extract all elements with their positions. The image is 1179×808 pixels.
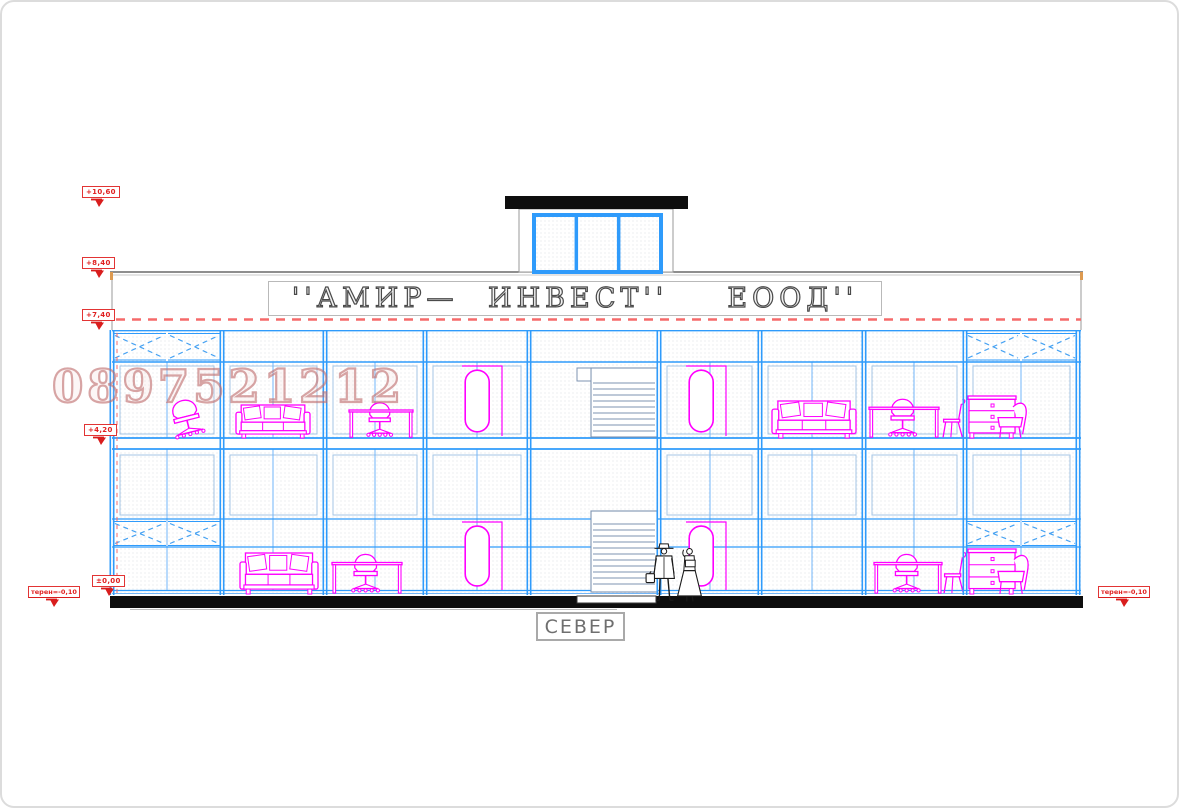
chair-wheel	[895, 433, 898, 436]
elevation-sheet: ''АМИР— ИНВЕСТ'' ЕООД'' 0897521212 СЕВЕР…	[0, 0, 1179, 808]
sofa-pillow	[270, 555, 287, 570]
drawers-foot	[1009, 433, 1013, 438]
chair-wheel	[905, 589, 908, 592]
furniture-sofa	[240, 553, 318, 594]
sofa-base	[776, 430, 852, 434]
stair-box	[591, 368, 657, 437]
sofa-pillow	[804, 403, 822, 416]
man-head	[661, 549, 666, 554]
chair-seat	[891, 416, 914, 420]
level-arrow-icon	[91, 436, 111, 447]
armchair-seat	[998, 571, 1024, 581]
woman-leg	[692, 596, 693, 602]
armchair-seat	[998, 418, 1023, 427]
drawers-foot	[1009, 589, 1013, 594]
rooftop-slab	[505, 196, 688, 209]
drawer-knob	[991, 426, 994, 429]
elevation-marker: ±0,00	[92, 575, 125, 598]
sofa-pillow	[290, 554, 309, 571]
rooftop-window	[534, 215, 661, 272]
chair-wheel	[901, 433, 904, 436]
sofa-seat	[241, 422, 305, 431]
desk-top	[332, 563, 402, 565]
sofa-pillow	[826, 402, 846, 418]
chair-seat	[944, 419, 960, 422]
chair-wheel	[195, 430, 199, 434]
man-briefcase	[646, 574, 654, 583]
elevation-value: +4,20	[84, 424, 117, 436]
chair-wheel	[893, 589, 896, 592]
chair-seat	[369, 418, 390, 422]
sofa-foot	[300, 434, 304, 438]
desk-leg	[935, 409, 938, 437]
chair-wheel	[376, 589, 379, 592]
terrain-marker: терен=-0,10	[28, 586, 80, 609]
elevation-marker: +8,40	[82, 257, 115, 280]
chair-wheel	[389, 433, 392, 436]
elevation-marker: +10,60	[82, 186, 120, 209]
sofa-seat	[778, 420, 850, 430]
operable-panel-texture	[113, 334, 166, 361]
drawer-knob	[991, 558, 994, 561]
terrain-value: терен=-0,10	[1098, 586, 1150, 598]
stair-landing	[577, 368, 591, 381]
sofa-base	[240, 431, 307, 434]
terrain-value: терен=-0,10	[28, 586, 80, 598]
elevation-marker: +4,20	[84, 424, 117, 447]
chair-wheel	[378, 433, 381, 436]
chair-seat	[354, 572, 377, 576]
chair-wheel	[384, 433, 387, 436]
desk-leg	[350, 412, 353, 437]
woman-bag	[685, 560, 695, 567]
elevation-value: +7,40	[82, 309, 115, 321]
cabinet-stadium	[465, 370, 489, 432]
desk-top	[874, 563, 942, 565]
floor-slab	[112, 438, 1081, 449]
elevation-value: +10,60	[82, 186, 120, 198]
drawer-knob	[991, 404, 994, 407]
terrain-marker: терен=-0,10	[1098, 586, 1150, 609]
chair-wheel	[372, 433, 375, 436]
operable-panel-texture	[168, 334, 221, 361]
desk-leg	[875, 565, 878, 593]
level-arrow-icon	[89, 269, 109, 280]
sofa-foot	[845, 434, 849, 438]
chair-wheel	[364, 589, 367, 592]
operable-panel-texture	[113, 522, 166, 546]
direction-label: СЕВЕР	[536, 612, 625, 641]
sofa-seat	[245, 574, 312, 585]
desk-top	[869, 407, 939, 409]
desk-leg	[409, 412, 412, 437]
sofa-base	[244, 585, 314, 589]
direction-label-text: СЕВЕР	[545, 616, 617, 638]
cabinet-stadium	[689, 370, 713, 432]
cabinet-stadium	[465, 526, 489, 586]
chair-wheel	[917, 589, 920, 592]
operable-panel-texture	[966, 522, 1020, 546]
chair-seat	[945, 574, 961, 577]
sofa-foot	[242, 434, 246, 438]
woman-head	[687, 549, 693, 555]
chair-wheel	[913, 433, 916, 436]
building-sign-text: ''АМИР— ИНВЕСТ'' ЕООД''	[292, 283, 858, 314]
drawers-foot	[970, 433, 974, 438]
corner-tick	[1080, 272, 1083, 280]
chair-wheel	[911, 589, 914, 592]
drawer-knob	[991, 581, 994, 584]
drawer-knob	[991, 570, 994, 573]
chair-wheel	[358, 589, 361, 592]
level-arrow-icon	[1114, 598, 1134, 609]
elevation-value: +8,40	[82, 257, 115, 269]
chair-wheel	[907, 433, 910, 436]
sofa-foot	[308, 589, 312, 594]
chair-wheel	[352, 589, 355, 592]
sofa-foot	[779, 434, 783, 438]
chair-seat	[895, 572, 917, 576]
operable-panel-texture	[168, 522, 221, 546]
sofa-pillow	[248, 554, 267, 571]
level-arrow-icon	[89, 198, 109, 209]
building-sign: ''АМИР— ИНВЕСТ'' ЕООД''	[268, 281, 882, 316]
desk-leg	[870, 409, 873, 437]
desk-leg	[398, 565, 401, 593]
drawers-foot	[970, 589, 974, 594]
chair-wheel	[182, 434, 186, 438]
chair-wheel	[188, 432, 192, 436]
entry-step	[577, 596, 656, 603]
chair-wheel	[370, 589, 373, 592]
chair-wheel	[367, 433, 370, 436]
elevation-value: ±0,00	[92, 575, 125, 587]
chair-wheel	[899, 589, 902, 592]
level-arrow-icon	[89, 321, 109, 332]
elevation-marker: +7,40	[82, 309, 115, 332]
level-arrow-icon	[99, 587, 119, 598]
watermark-phone: 0897521212	[52, 360, 405, 413]
desk-leg	[938, 565, 941, 593]
furniture-sofa	[772, 401, 856, 438]
sofa-pillow	[780, 402, 800, 418]
level-arrow-icon	[44, 598, 64, 609]
drawer-knob	[991, 415, 994, 418]
chair-wheel	[175, 435, 179, 439]
chair-wheel	[201, 429, 205, 433]
sofa-foot	[246, 589, 250, 594]
desk-leg	[333, 565, 336, 593]
chair-wheel	[889, 433, 892, 436]
